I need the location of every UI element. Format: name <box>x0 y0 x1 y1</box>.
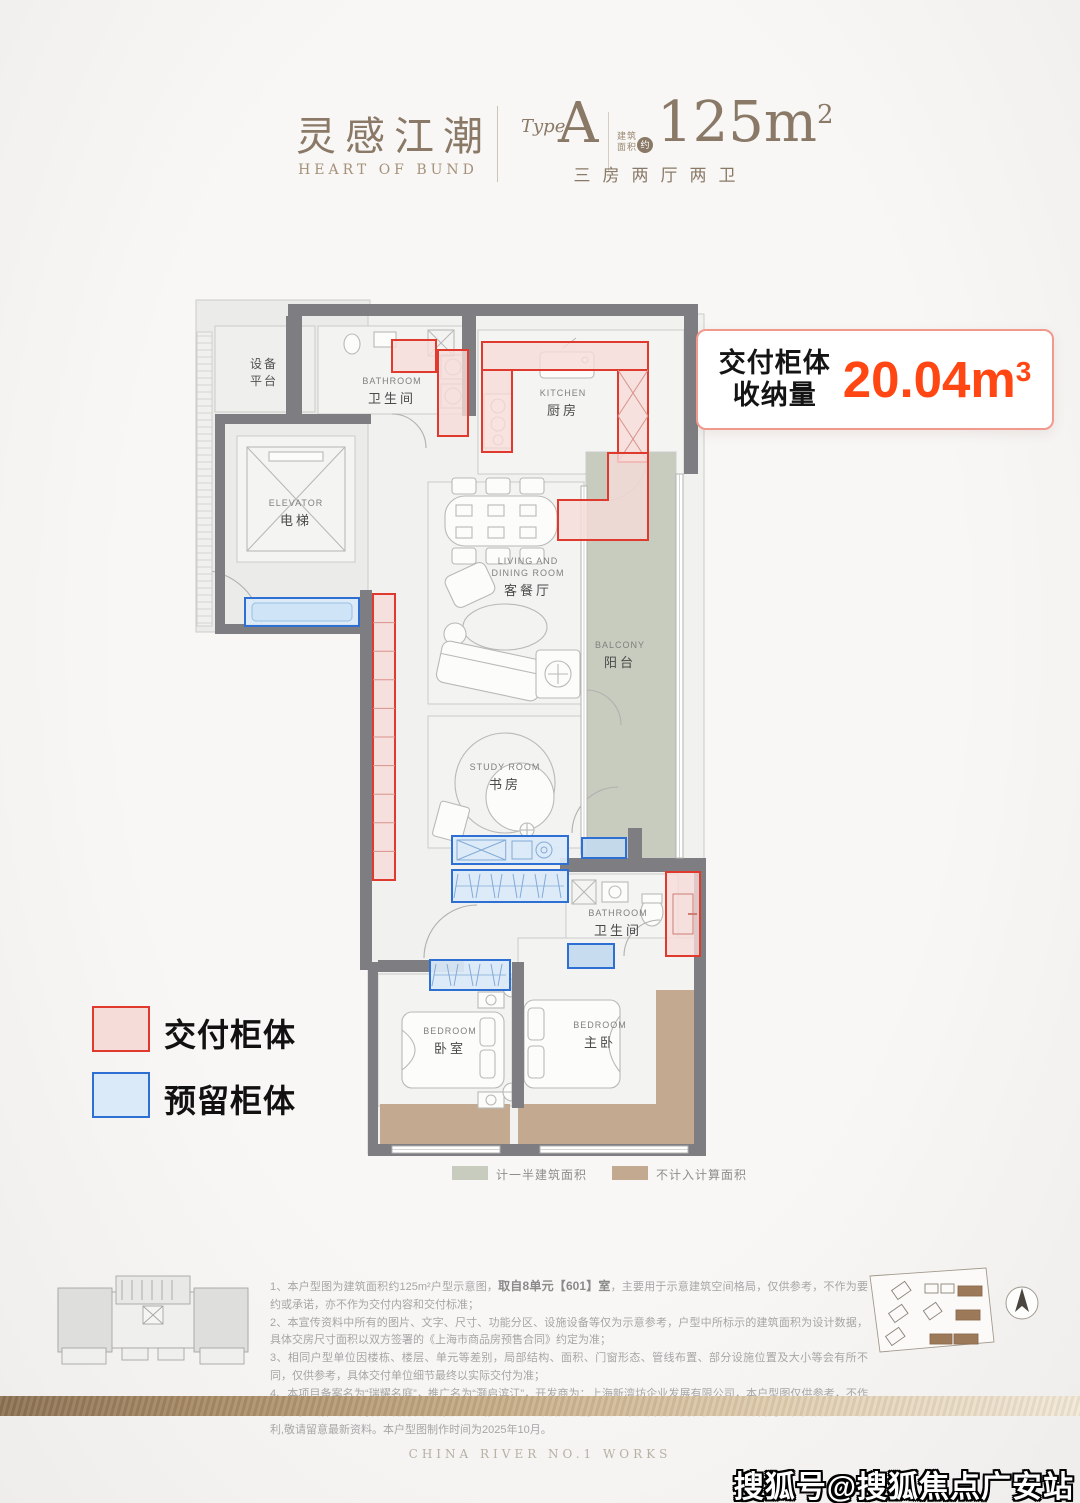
layout-description: 三房两厅两卫 <box>558 161 763 186</box>
legend-uncounted-swatch <box>612 1166 648 1180</box>
area-not-counted <box>518 1104 696 1146</box>
svg-text:卧室: 卧室 <box>434 1041 466 1056</box>
legend-delivered-swatch <box>92 1006 150 1052</box>
approx-badge: 约 <box>637 137 653 153</box>
svg-text:卫生间: 卫生间 <box>368 391 416 406</box>
legend-half-area-label: 计一半建筑面积 <box>496 1166 587 1183</box>
wall <box>288 304 698 316</box>
cabinet-reserved <box>582 838 626 858</box>
svg-text:厨房: 厨房 <box>547 403 579 418</box>
storage-badge-value: 20.04m3 <box>843 354 1032 405</box>
cabinet-reserved <box>245 598 359 626</box>
cabinet-delivered <box>482 342 648 370</box>
room-label: BATHROOM卫生间 <box>362 376 421 406</box>
compass-icon <box>1006 1287 1038 1319</box>
wall <box>512 962 524 1108</box>
svg-text:客餐厅: 客餐厅 <box>504 583 552 598</box>
cabinet-delivered <box>392 340 436 372</box>
watermark: 搜狐号@搜狐焦点广安站 <box>734 1462 1074 1503</box>
wall <box>215 414 225 634</box>
svg-text:阳台: 阳台 <box>604 655 636 670</box>
stair-hatch <box>197 332 212 626</box>
wall <box>628 828 642 860</box>
storage-badge-label: 交付柜体 收纳量 <box>719 348 831 412</box>
wall <box>368 962 378 1152</box>
area-not-counted <box>656 990 696 1104</box>
room-label: BATHROOM卫生间 <box>588 908 647 938</box>
cabinet-delivered <box>666 872 700 956</box>
wall <box>560 858 704 872</box>
svg-text:设备: 设备 <box>250 357 278 371</box>
svg-text:BATHROOM: BATHROOM <box>362 376 421 386</box>
svg-text:LIVING AND: LIVING AND <box>498 556 559 566</box>
svg-text:BEDROOM: BEDROOM <box>423 1026 477 1036</box>
cabinet-reserved <box>568 944 614 968</box>
note-3: 3、相同户型单位因楼栋、楼层、单元等差别，局部结构、面积、门窗形态、管线布置、部… <box>270 1352 868 1382</box>
brand-subtitle: HEART OF BUND <box>292 162 484 178</box>
keyplan <box>58 1276 248 1364</box>
cabinet-delivered <box>618 370 648 462</box>
svg-text:STUDY ROOM: STUDY ROOM <box>470 762 541 772</box>
area-value: 125m2 <box>657 95 834 151</box>
cabinet-reserved <box>452 836 568 864</box>
brand-title: 灵感江潮 <box>296 104 480 162</box>
cabinet-reserved <box>452 870 568 902</box>
legend-delivered-label: 交付柜体 <box>164 1010 296 1056</box>
note-2: 2、本宣传资料中所有的图片、文字、尺寸、功能分区、设施设备等仅为示意参考，户型中… <box>270 1317 868 1347</box>
legend-reserved-swatch <box>92 1072 150 1118</box>
note-1: 1、本户型图为建筑面积约125m²户型示意图， <box>270 1281 498 1293</box>
cabinet-delivered <box>373 594 395 880</box>
decor-gradient-bar <box>0 1396 1080 1416</box>
footer-slogan: CHINA RIVER NO.1 WORKS <box>0 1447 1080 1461</box>
legend-half-area-swatch <box>452 1166 488 1180</box>
svg-text:BEDROOM: BEDROOM <box>573 1020 627 1030</box>
wall <box>286 316 302 416</box>
type-value: A <box>558 96 598 152</box>
svg-text:书房: 书房 <box>489 777 521 792</box>
legend-reserved-label: 预留柜体 <box>164 1076 296 1122</box>
cabinet-reserved <box>430 960 510 990</box>
cabinet-delivered <box>482 370 512 452</box>
wall <box>360 590 372 970</box>
svg-text:DINING ROOM: DINING ROOM <box>492 568 565 578</box>
svg-text:BALCONY: BALCONY <box>595 640 645 650</box>
area-not-counted <box>380 1104 510 1146</box>
wall <box>215 414 371 424</box>
svg-text:BATHROOM: BATHROOM <box>588 908 647 918</box>
note-1-unit: 取自8单元【601】室 <box>498 1279 611 1293</box>
area-prefix: 建筑 面积 <box>617 131 637 153</box>
floorplan-poster: 设备平台BATHROOM卫生间ELEVATOR电梯KITCHEN厨房LIVING… <box>0 0 1080 1503</box>
svg-text:电梯: 电梯 <box>280 513 312 528</box>
svg-text:平台: 平台 <box>250 373 278 388</box>
svg-text:卫生间: 卫生间 <box>594 923 642 938</box>
cabinet-delivered <box>438 350 468 436</box>
svg-text:主卧: 主卧 <box>584 1035 616 1050</box>
legend-uncounted-label: 不计入计算面积 <box>656 1166 747 1183</box>
svg-text:ELEVATOR: ELEVATOR <box>269 498 324 508</box>
siteplan <box>870 1268 1038 1352</box>
svg-text:KITCHEN: KITCHEN <box>540 388 587 398</box>
header-divider <box>497 106 498 182</box>
storage-badge: 交付柜体 收纳量 20.04m3 <box>696 329 1054 430</box>
